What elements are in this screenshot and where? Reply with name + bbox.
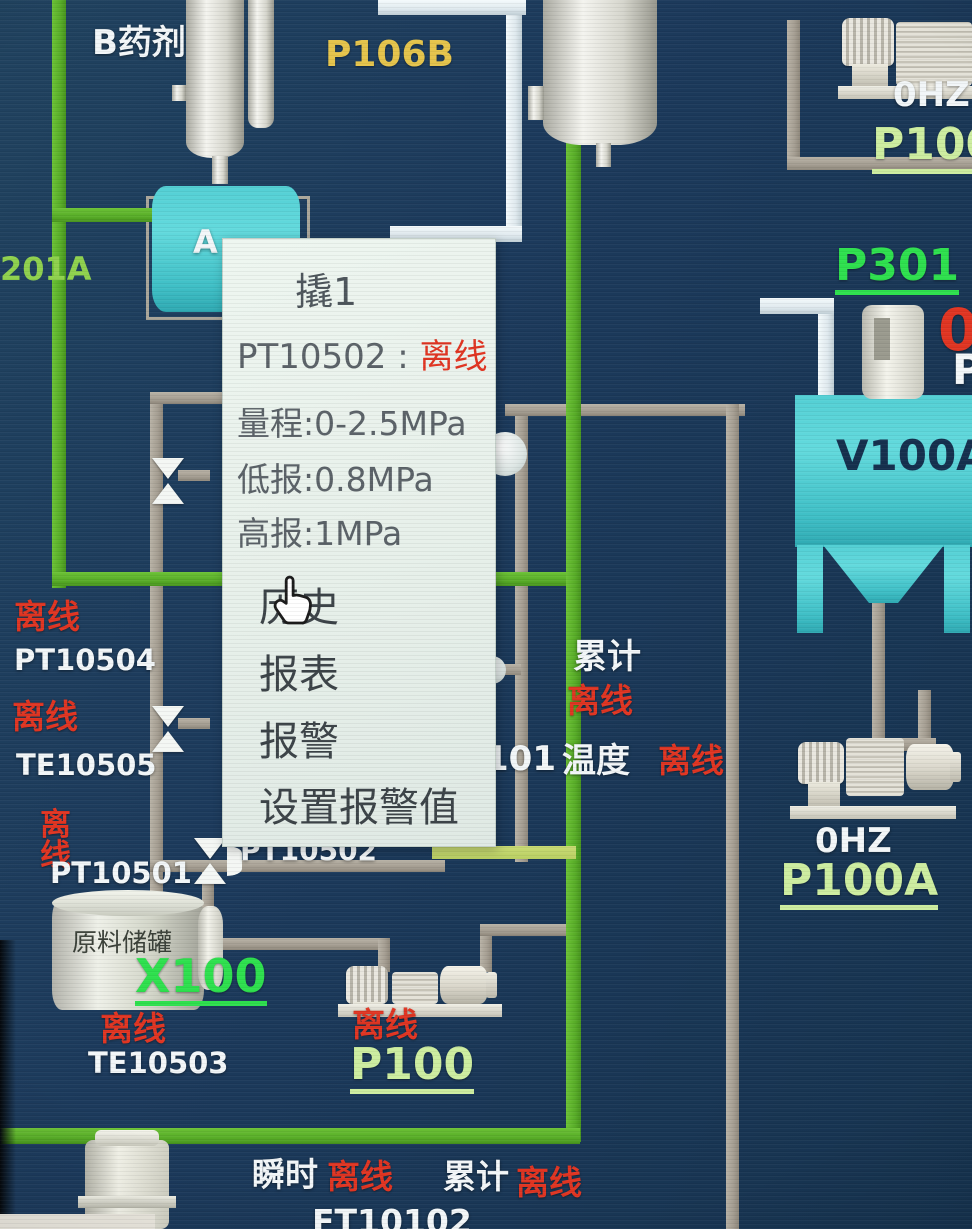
p106b-label[interactable]: P106B (325, 36, 454, 74)
ft-total-status: 离线 (516, 1166, 582, 1201)
b-agent-column-vessel[interactable] (186, 0, 244, 158)
pipe-white-v100a-h (760, 298, 834, 314)
b-agent-column-pipe (248, 0, 274, 128)
p100a-link[interactable]: P100A (780, 858, 938, 910)
pump-p100a-motor (798, 742, 844, 784)
pipe-green-center-vertical (566, 0, 581, 1142)
pipe-center-top-horizontal (505, 404, 745, 416)
pipe-p100-discharge-h (480, 924, 578, 936)
pump-p100-motor (346, 966, 388, 1004)
pump-p100a-flange (950, 752, 961, 782)
pump-p100-flange (486, 972, 497, 998)
pump-p100a-drive (846, 738, 904, 796)
te10505-status: 离线 (12, 700, 78, 735)
b-agent-nozzle (172, 85, 186, 101)
pump-p100-drive (392, 972, 438, 1004)
v100a-agitator-motor (862, 305, 924, 399)
mid-total-status: 离线 (567, 684, 633, 719)
pipe-white-vertical (506, 10, 522, 240)
v100a-label: V100A (836, 434, 972, 478)
pipe-green-tank-branch (52, 208, 166, 222)
pipe-white-top-bar (378, 0, 526, 15)
pump-p100a-body (906, 744, 954, 790)
popup-high-alarm-line: 高报:1MPa (237, 507, 402, 555)
instrument-popup: 撬1 PT10502 : 离线 量程:0-2.5MPa 低报:0.8MPa 高报… (222, 238, 496, 847)
menu-item-set-alarm-value[interactable]: 设置报警值 (259, 775, 459, 833)
pt10504-status: 离线 (14, 600, 80, 635)
valve-left-lower[interactable] (152, 706, 184, 752)
center-vessel[interactable] (543, 0, 657, 145)
a-agent-label-partial: A (193, 226, 218, 260)
bottom-left-vessel-cap (95, 1130, 159, 1146)
ft-instant-status: 离线 (327, 1160, 393, 1195)
temp-status: 离线 (658, 744, 724, 779)
bottom-left-vessel-flange (78, 1196, 176, 1208)
popup-separator: : (386, 337, 419, 377)
v100a-motor-slot (874, 318, 890, 360)
pipe-pale-green-stub (432, 846, 576, 859)
pipe-inner-vertical (515, 410, 528, 862)
popup-tag: PT10502 (237, 337, 386, 377)
te10503-status: 离线 (100, 1012, 166, 1047)
te10503-tag[interactable]: TE10503 (88, 1048, 228, 1078)
pt10504-tag[interactable]: PT10504 (14, 645, 156, 675)
pipe-topright-vertical (787, 20, 800, 170)
popup-title: 撬1 (295, 261, 357, 316)
pipe-left-rect-top (150, 392, 224, 404)
pump-top-right-motor (842, 18, 894, 66)
raw-material-tank-top (52, 890, 204, 916)
b-agent-outlet-stub (212, 156, 228, 184)
pump-top-right-foot (852, 64, 888, 86)
line-201a-label: 201A (0, 253, 92, 287)
pt10501-tag[interactable]: PT10501 (50, 858, 192, 888)
popup-low-alarm-line: 低报:0.8MPa (237, 453, 434, 501)
p100-status: 离线 (352, 1008, 418, 1043)
te10505-tag[interactable]: TE10505 (16, 750, 156, 780)
v100a-leg-left (797, 545, 823, 633)
pump-p100a[interactable] (790, 732, 962, 822)
ft-tag[interactable]: FT10102 (312, 1205, 472, 1229)
pipe-right-long-vertical (726, 404, 739, 1229)
popup-tag-line: PT10502 : 离线 (237, 329, 488, 378)
popup-status: 离线 (420, 337, 488, 377)
pump-top-right-speed: 0HZ (893, 78, 970, 114)
pump-p100-body (440, 966, 488, 1004)
center-vessel-outlet (596, 143, 611, 167)
ft-instant-label: 瞬时 (252, 1158, 318, 1193)
pipe-green-left-vertical (52, 0, 66, 588)
pump-p100a-base (790, 806, 956, 819)
v100a-funnel (823, 545, 944, 603)
pipe-v100a-outlet (872, 598, 885, 746)
edge-white-partial-label: P (952, 348, 972, 392)
temp-label: 温度 (562, 744, 630, 780)
photo-bottom-strip (0, 1214, 155, 1229)
x100-link[interactable]: X100 (135, 952, 267, 1006)
b-agent-label: B药剂 (92, 26, 186, 62)
menu-item-alarm[interactable]: 报警 (259, 709, 339, 767)
photo-left-bezel (0, 940, 16, 1229)
ft-total-label: 累计 (443, 1160, 509, 1195)
hmi-process-screen: B药剂 P106B A 201A 0HZ P100 P301 0 P 离线 PT… (0, 0, 972, 1229)
menu-item-report[interactable]: 报表 (259, 642, 339, 700)
center-vessel-nozzle (528, 86, 544, 120)
valve-left-upper[interactable] (152, 458, 184, 504)
pump-p100a-foot (808, 782, 840, 806)
pump-top-right-link[interactable]: P100 (872, 122, 972, 174)
p100-link[interactable]: P100 (350, 1042, 474, 1094)
p301-link[interactable]: P301 (835, 243, 959, 295)
mid-total-label: 累计 (573, 640, 641, 676)
popup-range-line: 量程:0-2.5MPa (237, 397, 467, 445)
v100a-leg-right (944, 545, 970, 633)
cursor-hand-icon (268, 572, 320, 632)
